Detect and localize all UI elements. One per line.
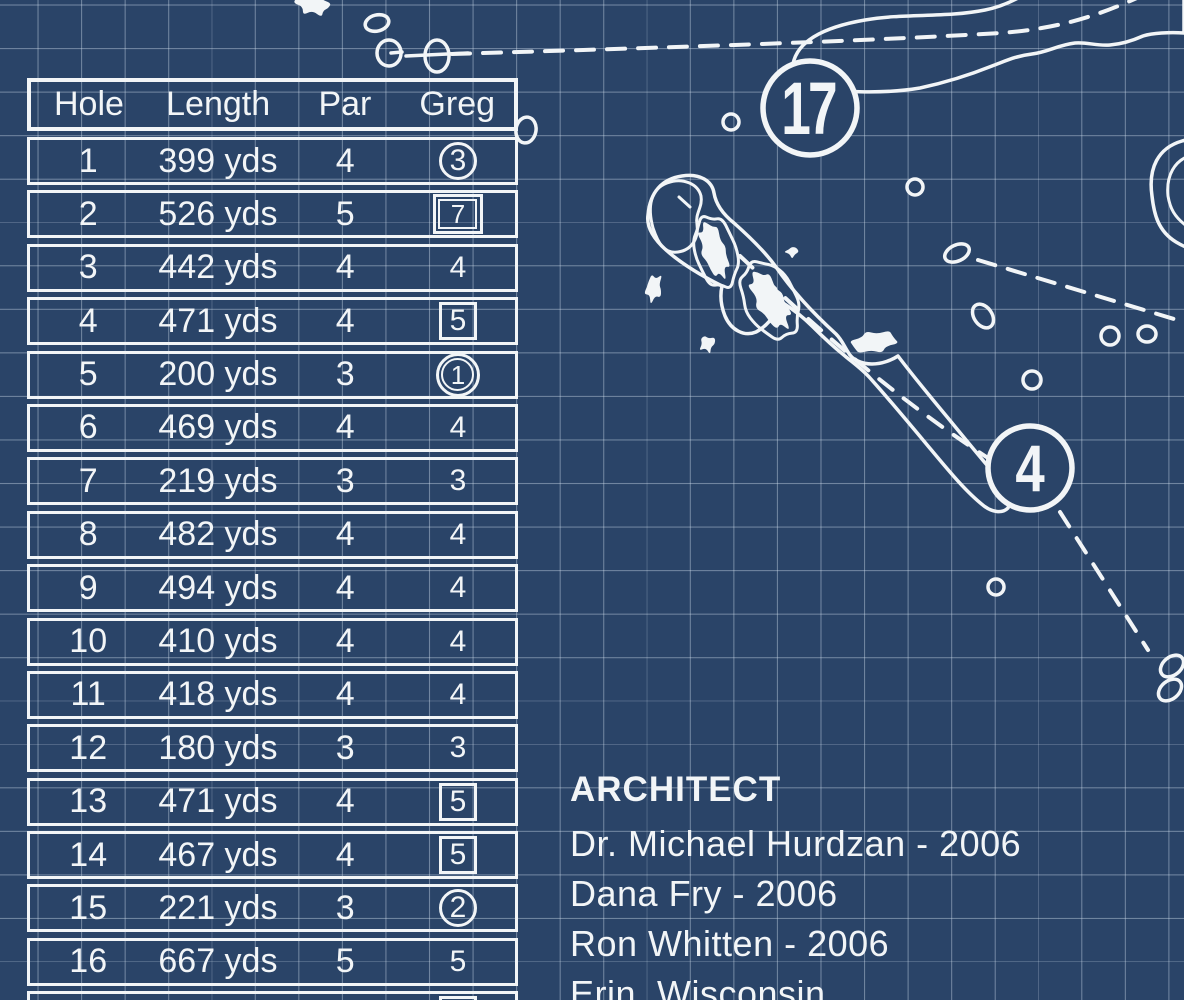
hole-length: 410 yds — [146, 622, 289, 661]
hole-par: 4 — [289, 142, 401, 181]
tree-circle — [723, 114, 739, 130]
hole4-flight-line-upper — [740, 256, 988, 458]
hole-length: 180 yds — [146, 729, 289, 768]
architect-heading: ARCHITECT — [570, 770, 1184, 810]
hole-par: 4 — [289, 569, 401, 608]
hole-number: 7 — [30, 462, 146, 501]
tree-circle — [1023, 371, 1041, 389]
score-value: 7 — [451, 201, 465, 227]
tree-circle — [988, 579, 1004, 595]
hole-number: 2 — [30, 195, 146, 234]
score-marker: 4 — [450, 680, 467, 710]
hole-number: 9 — [30, 569, 146, 608]
hole-length: 467 yds — [146, 836, 289, 875]
architect-line-3: Ron Whitten - 2006 — [570, 919, 1184, 969]
hole-par: 4 — [289, 408, 401, 447]
table-row: 13 471 yds 4 5 — [27, 778, 518, 826]
hole17-number: 17 — [781, 67, 836, 150]
table-row: 7 219 yds 3 3 — [27, 457, 518, 505]
hole-length: 221 yds — [146, 889, 289, 928]
bunker-top-left — [294, 0, 330, 16]
score-marker: 5 — [439, 836, 477, 874]
hole-par: 4 — [289, 302, 401, 341]
score-marker: 1 — [436, 353, 480, 397]
score-marker: 3 — [450, 466, 467, 496]
greg-score-cell: 3 — [401, 733, 515, 763]
score-marker: 5 — [439, 302, 477, 340]
table-row: 10 410 yds 4 4 — [27, 618, 518, 666]
greg-score-cell: 5 — [401, 783, 515, 821]
table-row: 5 200 yds 3 1 — [27, 351, 518, 399]
hole-length: 526 yds — [146, 195, 289, 234]
hole-par: 4 — [289, 515, 401, 554]
tee-tick — [391, 52, 402, 53]
scorecard-table: Hole Length Par Greg 1 399 yds 4 3 2 526… — [27, 78, 518, 1000]
hole-number: 16 — [30, 942, 146, 981]
hole4-number-badge: 4 — [988, 426, 1072, 510]
architect-line-1: Dr. Michael Hurdzan - 2006 — [570, 819, 1184, 869]
table-row: 14 467 yds 4 5 — [27, 831, 518, 879]
hole-par: 4 — [289, 836, 401, 875]
bunker-sand-left-edge — [645, 275, 662, 303]
hole-par: 4 — [289, 622, 401, 661]
hole-par: 3 — [289, 889, 401, 928]
architect-line-2: Dana Fry - 2006 — [570, 869, 1184, 919]
table-row: 15 221 yds 3 2 — [27, 884, 518, 932]
score-marker: 7 — [433, 194, 483, 234]
hole-length: 219 yds — [146, 462, 289, 501]
hole3-flight-line — [978, 260, 1184, 322]
score-value: 5 — [450, 840, 467, 870]
score-value: 4 — [450, 413, 467, 443]
hole4-pin-tick — [679, 197, 690, 207]
table-row: 9 494 yds 4 4 — [27, 564, 518, 612]
score-marker: 3 — [450, 733, 467, 763]
greg-score-cell — [401, 996, 515, 1000]
hole-number: 1 — [30, 142, 146, 181]
scorecard-header-row: Hole Length Par Greg — [27, 78, 518, 131]
hole-number: 3 — [30, 248, 146, 287]
hole4-flight-line-lower — [1060, 512, 1148, 650]
greg-score-cell: 3 — [401, 466, 515, 496]
hole-number: 13 — [30, 782, 146, 821]
hole-par: 3 — [289, 729, 401, 768]
score-marker: 4 — [450, 573, 467, 603]
hole-length: 471 yds — [146, 782, 289, 821]
architect-block: ARCHITECT Dr. Michael Hurdzan - 2006 Dan… — [570, 770, 1184, 1000]
table-row: 2 526 yds 5 7 — [27, 190, 518, 238]
hole-par: 4 — [289, 248, 401, 287]
hole-number: 10 — [30, 622, 146, 661]
score-marker: 5 — [450, 947, 467, 977]
tree-circle — [1101, 327, 1119, 345]
greg-score-cell: 3 — [401, 142, 515, 180]
table-row: 16 667 yds 5 5 — [27, 938, 518, 986]
column-header-hole: Hole — [31, 85, 147, 124]
table-row: 12 180 yds 3 3 — [27, 724, 518, 772]
hole-length: 482 yds — [146, 515, 289, 554]
hole-par: 4 — [289, 782, 401, 821]
hole17-green-inner — [1168, 153, 1184, 237]
hole-number: 4 — [30, 302, 146, 341]
score-value: 3 — [450, 733, 467, 763]
tree-oval — [942, 240, 972, 265]
hole-par: 5 — [289, 195, 401, 234]
score-marker — [439, 996, 477, 1000]
hole-number: 6 — [30, 408, 146, 447]
score-value: 5 — [450, 787, 467, 817]
hole-length: 442 yds — [146, 248, 289, 287]
score-value: 4 — [450, 520, 467, 550]
greg-score-cell: 4 — [401, 573, 515, 603]
hole-number: 12 — [30, 729, 146, 768]
greg-score-cell: 4 — [401, 627, 515, 657]
greg-score-cell: 5 — [401, 947, 515, 977]
hole4-tee-oval-2 — [1154, 675, 1184, 706]
hole4-tee-oval-1 — [1156, 651, 1184, 682]
score-value: 5 — [450, 947, 467, 977]
hole-length: 667 yds — [146, 942, 289, 981]
hole-par: 3 — [289, 355, 401, 394]
hole-length: 471 yds — [146, 302, 289, 341]
score-marker: 3 — [439, 142, 477, 180]
score-value: 1 — [451, 362, 465, 388]
score-value: 4 — [450, 573, 467, 603]
score-value: 3 — [450, 466, 467, 496]
score-value: 3 — [450, 146, 467, 176]
hole-number: 14 — [30, 836, 146, 875]
hole17-number-badge: 17 — [763, 61, 857, 155]
score-marker: 5 — [439, 783, 477, 821]
table-row: 6 469 yds 4 4 — [27, 404, 518, 452]
greg-score-cell: 7 — [401, 194, 515, 234]
greg-score-cell: 4 — [401, 520, 515, 550]
hole-number: 11 — [30, 675, 146, 714]
hole17-fairway — [792, 0, 1184, 92]
greg-score-cell: 2 — [401, 889, 515, 927]
hole-number: 5 — [30, 355, 146, 394]
tree-oval — [1138, 326, 1156, 342]
bunker-sand-small — [700, 336, 715, 353]
score-marker: 4 — [450, 520, 467, 550]
table-row: 11 418 yds 4 4 — [27, 671, 518, 719]
score-marker: 4 — [450, 253, 467, 283]
architect-line-4: Erin, Wisconsin — [570, 969, 1184, 1000]
table-row: 1 399 yds 4 3 — [27, 137, 518, 185]
score-value: 5 — [450, 306, 467, 336]
hole-length: 399 yds — [146, 142, 289, 181]
hole-par: 4 — [289, 675, 401, 714]
blueprint-canvas: 17 4 Hole Length Par Greg 1 399 yds 4 3 — [0, 0, 1184, 1000]
hole-number: 15 — [30, 889, 146, 928]
greg-score-cell: 4 — [401, 680, 515, 710]
tree-circle — [907, 179, 923, 195]
hole-length: 494 yds — [146, 569, 289, 608]
table-row: 8 482 yds 4 4 — [27, 511, 518, 559]
greg-score-cell: 1 — [401, 353, 515, 397]
column-header-length: Length — [147, 85, 289, 124]
bunker-sand-tiny — [785, 247, 798, 258]
hole-length: 418 yds — [146, 675, 289, 714]
greg-score-cell: 4 — [401, 253, 515, 283]
hole-number: 17 — [30, 996, 146, 1000]
table-row: 17 — [27, 991, 518, 1000]
table-row: 4 471 yds 4 5 — [27, 297, 518, 345]
bunker-sand-notch — [851, 331, 898, 352]
column-header-greg: Greg — [400, 85, 514, 124]
score-marker: 2 — [439, 889, 477, 927]
score-marker: 4 — [450, 413, 467, 443]
hole17-flight-line — [452, 0, 1146, 54]
hole-number: 8 — [30, 515, 146, 554]
greg-score-cell: 4 — [401, 413, 515, 443]
score-value: 2 — [450, 893, 467, 923]
hole-length: 200 yds — [146, 355, 289, 394]
score-value: 4 — [450, 253, 467, 283]
column-header-par: Par — [289, 85, 400, 124]
tree-oval — [968, 300, 998, 332]
table-row: 3 442 yds 4 4 — [27, 244, 518, 292]
score-marker: 4 — [450, 627, 467, 657]
hole-par: 3 — [289, 462, 401, 501]
greg-score-cell: 5 — [401, 836, 515, 874]
greg-score-cell: 5 — [401, 302, 515, 340]
score-value: 4 — [450, 680, 467, 710]
hole-par: 5 — [289, 942, 401, 981]
hole4-number: 4 — [1015, 431, 1044, 505]
score-value: 4 — [450, 627, 467, 657]
tee-oval-1 — [363, 12, 390, 33]
scorecard-rows: 1 399 yds 4 3 2 526 yds 5 7 3 442 yds 4 — [27, 137, 518, 1000]
hole-length: 469 yds — [146, 408, 289, 447]
